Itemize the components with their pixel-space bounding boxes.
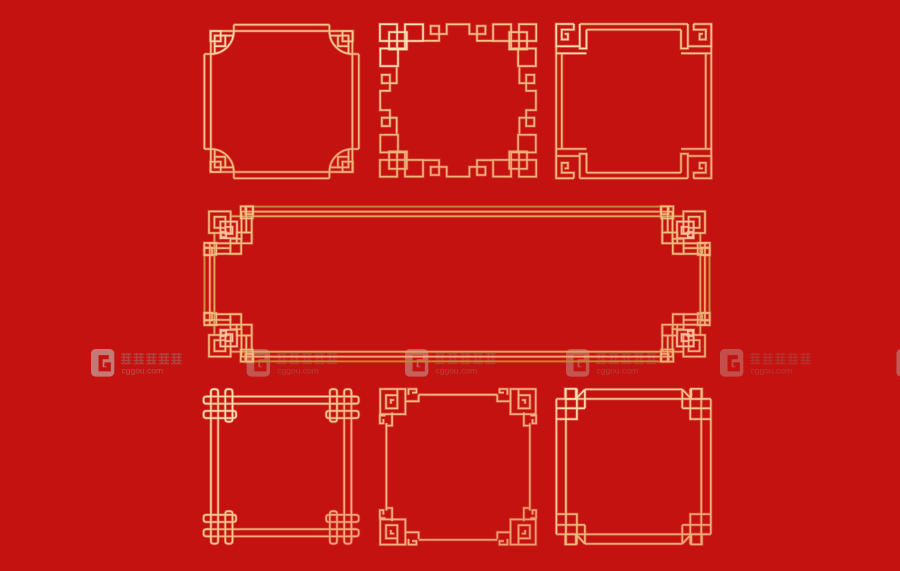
svg-text:cggou.com: cggou.com — [436, 366, 478, 376]
svg-text:cggou.com: cggou.com — [751, 366, 793, 376]
svg-text:cggou.com: cggou.com — [277, 366, 319, 376]
svg-text:cggou.com: cggou.com — [122, 366, 164, 376]
svg-text:cggou.com: cggou.com — [597, 366, 639, 376]
